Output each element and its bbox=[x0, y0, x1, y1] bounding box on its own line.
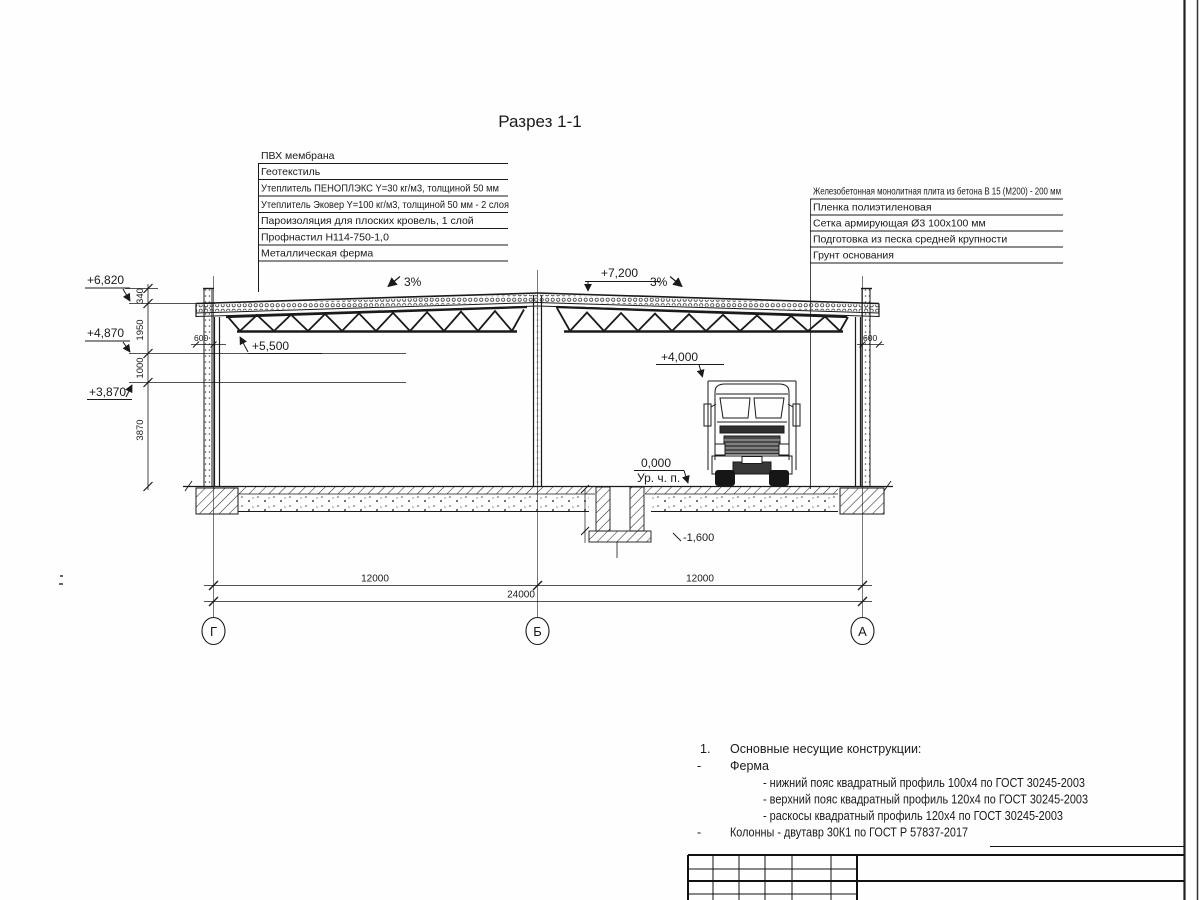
elev-truck: +4,000 bbox=[661, 350, 698, 364]
truck-headlight-right bbox=[779, 444, 789, 455]
truck bbox=[704, 381, 800, 486]
axis-label-right: А bbox=[858, 624, 867, 639]
elev-parapet: +6,820 bbox=[87, 273, 124, 287]
floor-assembly bbox=[183, 481, 893, 558]
title-block bbox=[688, 847, 1184, 900]
pit-wall-right bbox=[630, 487, 644, 531]
dim-roof-zone: 1950 bbox=[135, 319, 146, 340]
right-wall-panel bbox=[862, 289, 870, 487]
truck-wheel-right bbox=[769, 470, 789, 486]
bottom-dimensions: 12000 12000 24000 Г Б А bbox=[202, 574, 874, 645]
elev-eaves: +4,870 bbox=[87, 326, 124, 340]
section-drawing: Разрез 1-1 ПВХ мембрана Геотекстиль Утеп… bbox=[0, 0, 1200, 900]
drawing-title: Разрез 1-1 bbox=[498, 112, 581, 131]
truck-plate bbox=[742, 457, 762, 464]
note-truss-braces: - раскосы квадратный профиль 120х4 по ГО… bbox=[763, 809, 1063, 823]
axis-label-left: Г bbox=[210, 624, 217, 639]
floor-layer-label: Подготовка из песка средней крупности bbox=[813, 234, 1007, 246]
note-columns: Колонны - двутавр 30К1 по ГОСТ Р 57837-2… bbox=[730, 826, 968, 840]
roof-layer-label: Металлическая ферма bbox=[261, 248, 373, 260]
floor-layers-callout: Железобетонная монолитная плита из бетон… bbox=[810, 186, 1063, 490]
slope-right: 3% bbox=[650, 275, 668, 289]
elev-wall: +3,870 bbox=[89, 385, 126, 399]
truck-grille bbox=[724, 436, 780, 454]
pit-footing bbox=[589, 531, 651, 542]
slope-left: 3% bbox=[404, 275, 422, 289]
truck-grille-band bbox=[720, 426, 784, 433]
left-wall-panel bbox=[204, 289, 212, 487]
axis-label-middle: Б bbox=[533, 624, 542, 639]
floor-slab-concrete bbox=[238, 494, 589, 511]
roof-layer-label: Пароизоляция для плоских кровель, 1 слой bbox=[261, 215, 474, 227]
truck-windshield-right bbox=[754, 398, 784, 418]
construction-notes: 1. Основные несущие конструкции: - Ферма… bbox=[697, 742, 1088, 840]
elev-ridge: +7,200 bbox=[601, 266, 638, 280]
note-dash2: - bbox=[697, 826, 701, 840]
dim-parapet-height: 340 bbox=[135, 288, 146, 304]
roof-layers-callout: ПВХ мембрана Геотекстиль Утеплитель ПЕНО… bbox=[258, 150, 509, 292]
floor-layer-label: Сетка армирующая Ø3 100х100 мм bbox=[813, 218, 986, 230]
floor-layer-label: Железобетонная монолитная плита из бетон… bbox=[813, 186, 1061, 198]
floor-level-note: Ур. ч. п. bbox=[637, 471, 680, 485]
truck-windshield-left bbox=[720, 398, 750, 418]
roof-layer-label: Профнастил Н114-750-1,0 bbox=[261, 232, 389, 244]
elev-truss-bottom: +5,500 bbox=[252, 339, 289, 353]
note-dash: - bbox=[697, 759, 701, 773]
floor-topping bbox=[238, 487, 595, 494]
elev-pit: -1,600 bbox=[683, 532, 714, 544]
sheet-frame bbox=[1185, 0, 1198, 900]
floor-layer-label: Пленка полиэтиленовая bbox=[813, 202, 932, 214]
note-truss-bottom-chord: - нижний пояс квадратный профиль 100х4 п… bbox=[763, 776, 1085, 790]
truck-headlight-left bbox=[715, 444, 725, 455]
dim-overhang-left: 600 bbox=[194, 333, 208, 343]
left-foundation bbox=[196, 488, 238, 514]
right-foundation bbox=[840, 488, 884, 514]
dim-band: 1000 bbox=[135, 357, 146, 378]
note-number: 1. bbox=[700, 742, 710, 756]
dim-wall-height: 3870 bbox=[135, 419, 146, 440]
note-truss: Ферма bbox=[730, 759, 769, 773]
roof-layer-label: Утеплитель ПЕНОПЛЭКС Y=30 кг/м3, толщино… bbox=[261, 183, 499, 195]
dim-total-span: 24000 bbox=[507, 590, 535, 601]
roof-layer-label: ПВХ мембрана bbox=[261, 150, 335, 162]
roof-layer-label: Геотекстиль bbox=[261, 166, 321, 178]
elev-floor: 0,000 bbox=[641, 456, 671, 470]
truck-wheel-left bbox=[715, 470, 735, 486]
dim-bay-right: 12000 bbox=[686, 574, 714, 585]
stray-marks bbox=[59, 575, 63, 585]
pit-wall-left bbox=[596, 487, 610, 531]
note-main: Основные несущие конструкции: bbox=[730, 742, 921, 756]
note-truss-top-chord: - верхний пояс квадратный профиль 120х4 … bbox=[763, 793, 1088, 807]
drawing-sheet: Разрез 1-1 ПВХ мембрана Геотекстиль Утеп… bbox=[0, 0, 1200, 900]
middle-column bbox=[534, 296, 541, 487]
walls-and-columns bbox=[203, 289, 872, 488]
roof-layer-label: Утеплитель Эковер Y=100 кг/м3, толщиной … bbox=[261, 199, 509, 211]
floor-layer-label: Грунт основания bbox=[813, 250, 894, 262]
dim-bay-left: 12000 bbox=[361, 574, 389, 585]
